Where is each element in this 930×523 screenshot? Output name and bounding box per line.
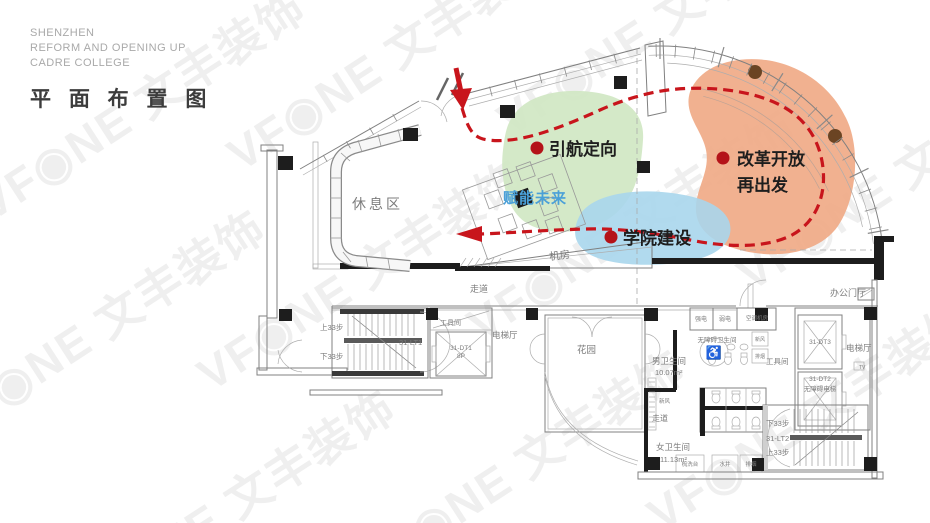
- column-dot: [828, 129, 842, 143]
- zone-label-orange-line2: 再出发: [737, 175, 789, 195]
- garden-curved-wall: [545, 376, 637, 465]
- slide-header: SHENZHEN REFORM AND OPENING UP CADRE COL…: [30, 26, 212, 113]
- page-title: 平 面 布 置 图: [30, 83, 212, 113]
- entrance-door-swing: [421, 101, 447, 122]
- zone-dot-orange: [717, 152, 730, 165]
- label-machine-room: 机房: [548, 248, 570, 263]
- zone-dot-blue: [605, 231, 618, 244]
- label-wash-counter: 梳洗台: [682, 460, 699, 468]
- entrance-door-leaf: [437, 78, 448, 100]
- baseline: [310, 390, 442, 395]
- garden-room: [530, 315, 660, 465]
- label-tool-room-left: 工具间: [440, 319, 461, 327]
- label-stairs-down-left: 下33步: [320, 352, 344, 361]
- arc-end-wall: [874, 236, 894, 242]
- zone-dot-green: [531, 142, 544, 155]
- label-garden: 花园: [577, 344, 596, 356]
- label-tv: TV: [859, 365, 866, 371]
- left-outer-wall: [267, 150, 277, 318]
- label-weak-power: 弱电: [719, 315, 731, 323]
- zone-label-blue: 学院建设: [623, 228, 691, 248]
- floor-plan-slide: VF◉NE 文丰装饰 VF◉NE 文丰装饰 VF◉NE 文丰装饰 VF◉NE 文…: [0, 0, 930, 523]
- elevator-dt1-block: [430, 308, 492, 378]
- label-corridor-bottom: 走道: [652, 413, 668, 423]
- label-mens-wc-area: 10.07m²: [655, 368, 683, 377]
- label-fresh-air-shaft: 新风: [755, 336, 765, 343]
- left-lower-wall: [259, 316, 267, 370]
- label-tool-room-right: 工具间: [766, 357, 789, 366]
- exit-arrow-head: [456, 226, 482, 242]
- label-stair-id-left: 31-LT1: [399, 338, 422, 347]
- baseline: [638, 472, 883, 479]
- zone-label-orange-line1: 改革开放: [737, 149, 806, 169]
- entry-arrow-shaft: [456, 68, 461, 92]
- label-smoke-exhaust: 排烟: [745, 460, 757, 468]
- label-stairs-down-right: 下33步: [766, 419, 790, 428]
- label-accessible-elevator: 无障碍电梯: [804, 384, 837, 393]
- label-elevator-dt2: 31-DT2: [809, 376, 831, 383]
- label-accessible-wc: 无障碍卫生间: [698, 335, 737, 344]
- label-fresh-air: 新风: [659, 397, 671, 405]
- label-stairs-up-right: 上33步: [766, 448, 790, 457]
- hall-bottom-wall: [652, 258, 878, 264]
- label-strong-power: 强电: [695, 315, 707, 323]
- label-corridor-top: 走道: [470, 283, 488, 294]
- hall-bottom-wall: [455, 266, 550, 271]
- label-elevator-hall-right: 电梯厅: [846, 343, 872, 353]
- label-stair-id-right: 31-LT2: [766, 434, 789, 443]
- wheelchair-icon: ♿: [706, 345, 722, 360]
- project-name-en-line3: CADRE COLLEGE: [30, 56, 212, 71]
- lower-band: [278, 280, 883, 479]
- label-mens-wc: 男卫生间: [652, 356, 686, 366]
- label-womens-wc: 女卫生间: [656, 442, 690, 452]
- label-rest-area: 休息区: [352, 196, 403, 212]
- pier: [645, 41, 666, 116]
- label-smoke-shaft: 排烟: [755, 353, 765, 360]
- label-water-well: 水井: [719, 460, 731, 468]
- label-stairs-up-left: 上33步: [320, 323, 344, 332]
- zone-label-future: 赋能未来: [503, 189, 567, 207]
- zone-label-green: 引航定向: [549, 139, 617, 159]
- label-elevator-cap-left: 8P: [457, 353, 465, 360]
- label-ac-room: 空调机房: [746, 314, 769, 322]
- top-wall-right-outer: [465, 48, 640, 94]
- foyer-wall: [748, 284, 753, 308]
- entry-arrow-head: [450, 88, 472, 110]
- garden-curved-wall: [545, 372, 638, 461]
- label-elevator-id-left: 31-DT1: [450, 345, 472, 352]
- label-office-foyer: 办公门厅: [830, 287, 866, 298]
- project-name-en-line1: SHENZHEN: [30, 26, 212, 41]
- label-elevator-hall-left: 电梯厅: [492, 330, 518, 340]
- project-name-en-line2: REFORM AND OPENING UP: [30, 41, 212, 56]
- label-elevator-dt3: 31-DT3: [809, 339, 831, 346]
